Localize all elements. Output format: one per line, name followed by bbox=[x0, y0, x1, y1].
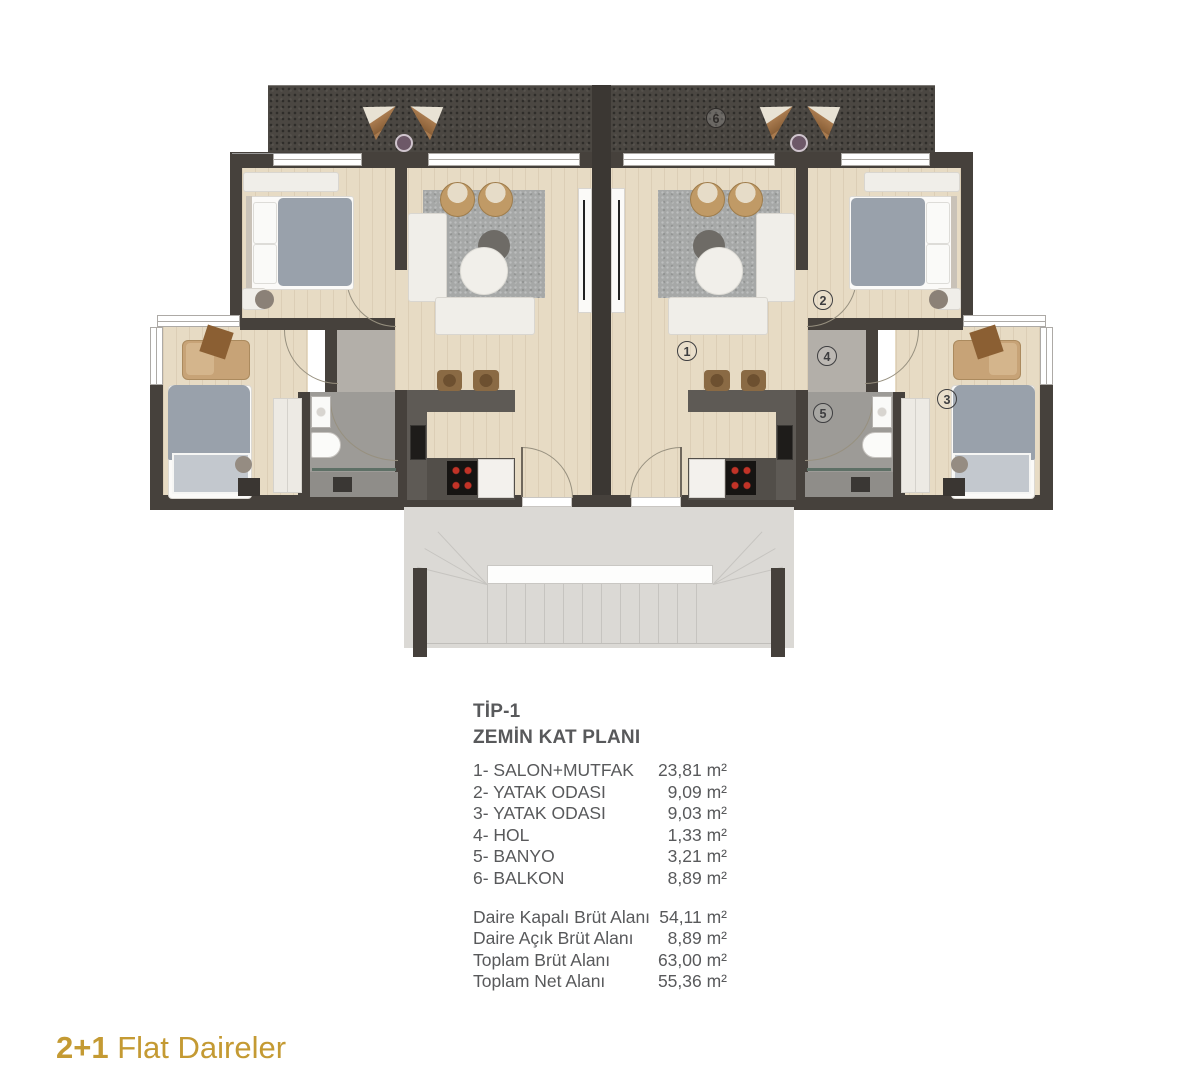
total-area: 63,00 m² bbox=[658, 950, 727, 972]
wardrobe bbox=[243, 172, 339, 192]
bar-stool bbox=[741, 370, 766, 391]
room-area: 23,81 m² bbox=[658, 760, 727, 782]
wicker-chair bbox=[728, 182, 763, 217]
room-area: 9,03 m² bbox=[668, 803, 727, 825]
bed-headboard bbox=[951, 196, 957, 288]
bath-sink bbox=[311, 396, 331, 428]
wing-top-wall bbox=[905, 318, 963, 330]
sofa-section bbox=[756, 213, 795, 302]
bed-headboard bbox=[246, 196, 252, 288]
room-label-living: 1 bbox=[677, 341, 697, 361]
hall-floor bbox=[808, 330, 866, 392]
bedroom2-window bbox=[273, 153, 362, 166]
wicker-chair bbox=[478, 182, 513, 217]
tv-panel bbox=[578, 188, 592, 313]
living-bedroom-wall bbox=[395, 152, 407, 270]
total-name: Daire Açık Brüt Alanı bbox=[473, 928, 634, 950]
room-name: 4- HOL bbox=[473, 825, 529, 847]
room-name: 2- YATAK ODASI bbox=[473, 782, 606, 804]
porch-post bbox=[771, 568, 785, 657]
room-row: 6- BALKON 8,89 m² bbox=[473, 868, 727, 890]
room-row: 5- BANYO 3,21 m² bbox=[473, 846, 727, 868]
page-title-text: Flat Daireler bbox=[117, 1030, 286, 1065]
balcony-table bbox=[790, 134, 808, 152]
plan-type-title: TİP-1 bbox=[473, 699, 727, 725]
area-totals: Daire Kapalı Brüt Alanı 54,11 m² Daire A… bbox=[473, 907, 727, 993]
bedroom3-top-window bbox=[157, 315, 240, 327]
page-title: 2+1 Flat Daireler bbox=[56, 1030, 286, 1066]
total-row: Daire Açık Brüt Alanı 8,89 m² bbox=[473, 928, 727, 950]
entry-door-leaf bbox=[680, 447, 682, 497]
room-row: 2- YATAK ODASI 9,09 m² bbox=[473, 782, 727, 804]
room-row: 1- SALON+MUTFAK 23,81 m² bbox=[473, 760, 727, 782]
wicker-chair bbox=[440, 182, 475, 217]
room-area: 1,33 m² bbox=[668, 825, 727, 847]
duvet bbox=[278, 198, 352, 286]
living-bedroom-wall bbox=[796, 152, 808, 270]
stair-steps bbox=[487, 584, 713, 644]
porch-post bbox=[413, 568, 427, 657]
stair-landing bbox=[487, 565, 713, 584]
kitchen-sink bbox=[777, 425, 793, 460]
room-name: 5- BANYO bbox=[473, 846, 555, 868]
entry-threshold bbox=[522, 497, 572, 507]
plan-info: TİP-1 ZEMİN KAT PLANI 1- SALON+MUTFAK 23… bbox=[473, 699, 727, 993]
side-table-dark bbox=[238, 478, 260, 496]
fridge bbox=[478, 459, 514, 498]
wicker-chair bbox=[690, 182, 725, 217]
duvet bbox=[953, 385, 1035, 460]
bath-sink bbox=[872, 396, 892, 428]
total-area: 8,89 m² bbox=[668, 928, 727, 950]
room-label-balcony: 6 bbox=[706, 108, 726, 128]
page-title-highlight: 2+1 bbox=[56, 1030, 109, 1065]
sofa-section bbox=[435, 297, 535, 335]
room-list: 1- SALON+MUTFAK 23,81 m² 2- YATAK ODASI … bbox=[473, 760, 727, 890]
room-name: 1- SALON+MUTFAK bbox=[473, 760, 634, 782]
cooktop bbox=[447, 461, 477, 495]
hall-floor bbox=[337, 330, 395, 392]
tv-screen bbox=[618, 200, 620, 300]
bedroom3-side-window bbox=[150, 327, 163, 385]
shower-floor bbox=[805, 472, 893, 497]
pouf-light bbox=[460, 247, 508, 295]
cooktop bbox=[726, 461, 756, 495]
kitchen-sink bbox=[410, 425, 426, 460]
party-wall bbox=[600, 85, 611, 507]
total-row: Toplam Net Alanı 55,36 m² bbox=[473, 971, 727, 993]
bedroom2-window bbox=[841, 153, 930, 166]
wardrobe bbox=[273, 398, 302, 493]
living-window bbox=[623, 153, 775, 166]
wing-left-wall bbox=[1040, 385, 1053, 497]
shower-head bbox=[333, 477, 352, 492]
room-area: 8,89 m² bbox=[668, 868, 727, 890]
room-area: 9,09 m² bbox=[668, 782, 727, 804]
room-label-bedroom2: 2 bbox=[813, 290, 833, 310]
room-label-bedroom3: 3 bbox=[937, 389, 957, 409]
bedroom3-side-window bbox=[1040, 327, 1053, 385]
pillow bbox=[253, 244, 277, 284]
pillow bbox=[926, 244, 950, 284]
shower-head bbox=[851, 477, 870, 492]
sofa-section bbox=[408, 213, 447, 302]
wardrobe bbox=[864, 172, 960, 192]
pouf-light bbox=[695, 247, 743, 295]
bedroom3-top-window bbox=[963, 315, 1046, 327]
stair-bottom-edge bbox=[425, 643, 775, 644]
room-row: 4- HOL 1,33 m² bbox=[473, 825, 727, 847]
side-table bbox=[235, 456, 252, 473]
shower-glass bbox=[312, 468, 396, 471]
sofa-section bbox=[668, 297, 768, 335]
wing-top-wall bbox=[240, 318, 298, 330]
kitchen-bar bbox=[407, 390, 515, 412]
pillow bbox=[253, 202, 277, 244]
shower-glass bbox=[807, 468, 891, 471]
toilet bbox=[311, 432, 341, 458]
total-area: 55,36 m² bbox=[658, 971, 727, 993]
side-table bbox=[951, 456, 968, 473]
total-row: Toplam Brüt Alanı 63,00 m² bbox=[473, 950, 727, 972]
left-wall bbox=[961, 152, 973, 330]
side-table-dark bbox=[943, 478, 965, 496]
room-name: 3- YATAK ODASI bbox=[473, 803, 606, 825]
total-name: Toplam Net Alanı bbox=[473, 971, 605, 993]
entry-threshold bbox=[631, 497, 681, 507]
pillow bbox=[926, 202, 950, 244]
living-window bbox=[428, 153, 580, 166]
stool bbox=[929, 290, 948, 309]
total-area: 54,11 m² bbox=[659, 907, 727, 929]
room-name: 6- BALKON bbox=[473, 868, 564, 890]
duvet bbox=[851, 198, 925, 286]
left-wall bbox=[230, 152, 242, 330]
bar-stool bbox=[437, 370, 462, 391]
room-area: 3,21 m² bbox=[668, 846, 727, 868]
shower-floor bbox=[310, 472, 398, 497]
entry-door-leaf bbox=[521, 447, 523, 497]
total-name: Toplam Brüt Alanı bbox=[473, 950, 610, 972]
kitchen-bar bbox=[688, 390, 796, 412]
wardrobe bbox=[901, 398, 930, 493]
total-name: Daire Kapalı Brüt Alanı bbox=[473, 907, 650, 929]
balcony-table bbox=[395, 134, 413, 152]
duvet bbox=[168, 385, 250, 460]
bar-stool bbox=[704, 370, 730, 391]
toilet bbox=[862, 432, 892, 458]
wing-left-wall bbox=[150, 385, 163, 497]
total-row: Daire Kapalı Brüt Alanı 54,11 m² bbox=[473, 907, 727, 929]
room-label-bath: 5 bbox=[813, 403, 833, 423]
plan-floor-title: ZEMİN KAT PLANI bbox=[473, 725, 727, 751]
dimension-line bbox=[232, 153, 330, 154]
bar-stool bbox=[473, 370, 499, 391]
room-row: 3- YATAK ODASI 9,03 m² bbox=[473, 803, 727, 825]
stool bbox=[255, 290, 274, 309]
fridge bbox=[689, 459, 725, 498]
tv-screen bbox=[583, 200, 585, 300]
room-label-hall: 4 bbox=[817, 346, 837, 366]
